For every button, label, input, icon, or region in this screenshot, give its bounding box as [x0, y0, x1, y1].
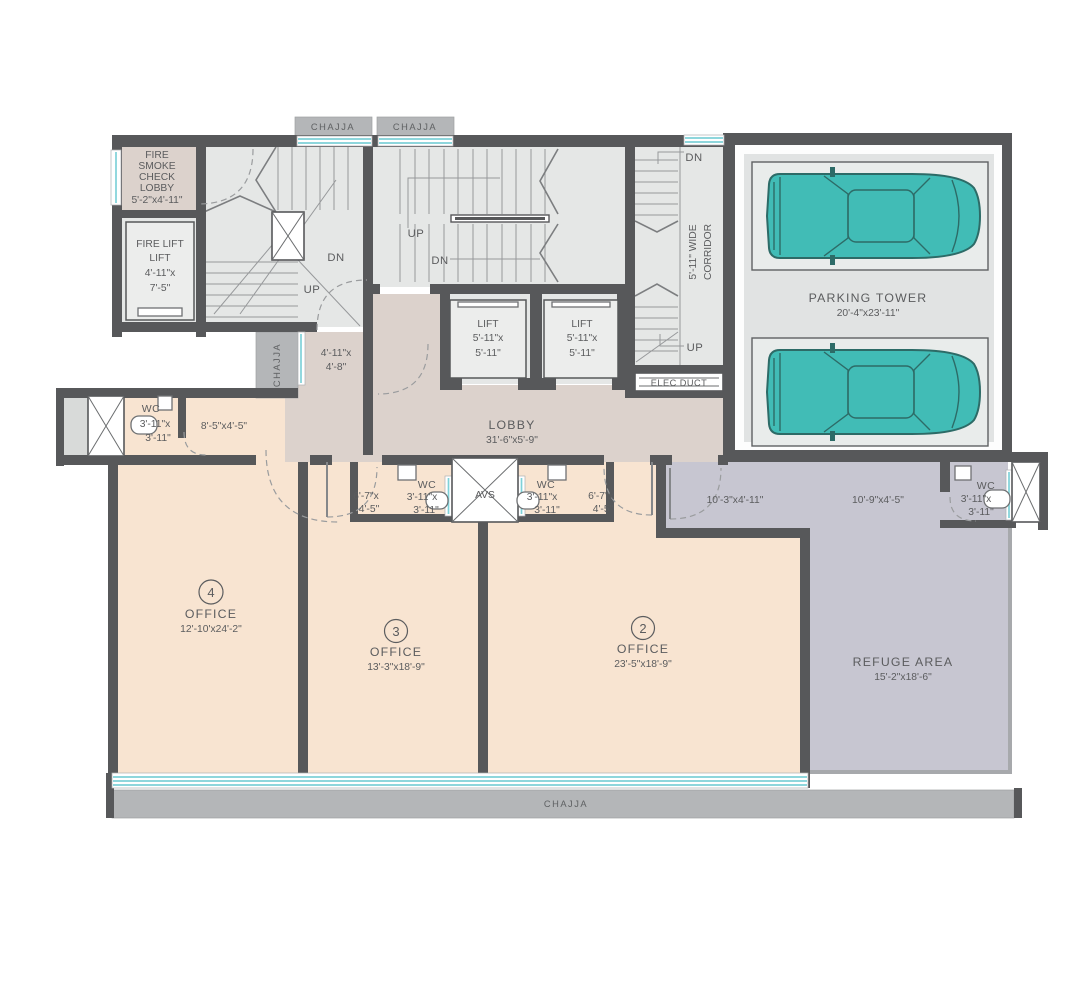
fire-lift-line1: FIRE LIFT — [136, 239, 184, 250]
stair-shaft-duct — [272, 212, 304, 260]
refuge-passage-b-label: 10'-9"x4'-5" — [852, 495, 904, 506]
lobby-arm-right — [373, 294, 440, 387]
corridor-dn-label: DN — [685, 152, 702, 164]
stair2-up-label: UP — [408, 228, 425, 240]
protrusion-gray — [64, 396, 88, 456]
corridor-line1: 5'-11" WIDE — [688, 224, 699, 279]
stair1-dn-label: DN — [327, 252, 344, 264]
lift2-dim2: 5'-11" — [569, 348, 595, 359]
passage-o3-dim2: 4'-5" — [359, 504, 380, 515]
parking-dim: 20'-4"x23'-11" — [837, 308, 900, 319]
fire-lobby-line1: FIRE — [145, 150, 169, 161]
office-2-number: 2 — [639, 621, 646, 636]
avs-label: AVS — [475, 490, 495, 501]
fire-lift-dim1: 4'-11"x — [145, 268, 176, 279]
refuge-right-border — [1008, 528, 1012, 772]
car-icon — [767, 167, 980, 265]
duct-right — [1012, 462, 1040, 522]
elec-duct-label: ELEC DUCT — [651, 378, 708, 388]
refuge-bottom-border — [804, 770, 1012, 774]
duct-left — [88, 396, 124, 456]
fire-lift-line2: LIFT — [149, 253, 171, 264]
corridor-up-label: UP — [687, 342, 704, 354]
lift2-name: LIFT — [571, 319, 593, 330]
passage-o2-dim1: 6'-7"x — [588, 491, 615, 502]
wc-mid-right-dim2: 3'-11" — [534, 505, 560, 516]
floor-plan-drawing: CHAJJA CHAJJA CHAJJA CHAJJA FIRE SMOKE C… — [0, 0, 1079, 983]
office-3-name: OFFICE — [370, 645, 422, 659]
fire-lift-dim2: 7'-5" — [150, 283, 171, 294]
office-2-dim: 23'-5"x18'-9" — [614, 659, 672, 670]
chajja-side-label: CHAJJA — [272, 343, 282, 387]
window-corridor-top — [684, 135, 724, 145]
car-icon — [767, 343, 980, 441]
corridor-line2: CORRIDOR — [703, 224, 714, 280]
chajja-top-2-label: CHAJJA — [393, 122, 437, 132]
lift1-dim2: 5'-11" — [475, 348, 501, 359]
lobby-passage-dim1: 4'-11"x — [321, 348, 352, 359]
lobby-dim: 31'-6"x5'-9" — [486, 435, 538, 446]
fire-lobby-line4: LOBBY — [140, 183, 174, 194]
wc-mid-left-name: WC — [418, 479, 437, 491]
wc-mid-right-name: WC — [537, 479, 556, 491]
wc-refuge-dim1: 3'-11"x — [961, 494, 992, 505]
fire-lobby-dim: 5'-2"x4'-11" — [131, 195, 182, 206]
office-3-dim: 13'-3"x18'-9" — [367, 662, 425, 673]
window-chajja-side — [298, 332, 305, 385]
wc-refuge-name: WC — [977, 480, 996, 492]
office-3-number: 3 — [392, 624, 399, 639]
office-2-name: OFFICE — [617, 642, 669, 656]
lobby-arm-left — [305, 332, 363, 387]
wc-left-name: WC — [142, 403, 161, 415]
passage-o2-dim2: 4'-5" — [593, 504, 614, 515]
passage-o3-dim1: 6'-7"x — [353, 491, 380, 502]
window-top-2 — [378, 136, 453, 146]
window-fire-lobby-left — [111, 150, 121, 205]
refuge-dim: 15'-2"x18'-6" — [874, 672, 932, 683]
wc-mid-right-dim1: 3'-11"x — [527, 492, 558, 503]
office-4-number: 4 — [207, 585, 214, 600]
refuge-passage-a-label: 10'-3"x4'-11" — [707, 495, 764, 506]
lift2-dim1: 5'-11"x — [567, 333, 598, 344]
window-band-offices — [112, 773, 808, 788]
wc-left-dim1: 3'-11"x — [140, 419, 171, 430]
stair1-up-label: UP — [304, 284, 321, 296]
window-top-1 — [297, 136, 372, 146]
wc-mid-left-dim2: 3'-11" — [413, 505, 439, 516]
refuge-name: REFUGE AREA — [853, 655, 954, 669]
wc-refuge-dim2: 3'-11" — [968, 507, 994, 518]
wc-left-dim2: 3'-11" — [145, 433, 171, 444]
fire-lobby-line3: CHECK — [139, 172, 175, 183]
lobby-passage-dim2: 4'-8" — [326, 362, 347, 373]
wc-mid-left-dim1: 3'-11"x — [407, 492, 438, 503]
parking-name: PARKING TOWER — [809, 291, 928, 305]
lift1-name: LIFT — [477, 319, 499, 330]
office-4-name: OFFICE — [185, 607, 237, 621]
lobby-name: LOBBY — [488, 418, 535, 432]
stair2-dn-label: DN — [431, 255, 448, 267]
passage-8-5-label: 8'-5"x4'-5" — [201, 421, 247, 432]
fire-lobby-line2: SMOKE — [138, 161, 175, 172]
chajja-bottom-label: CHAJJA — [544, 799, 588, 809]
chajja-top-1-label: CHAJJA — [311, 122, 355, 132]
office-4-dim: 12'-10'x24'-2" — [180, 624, 242, 635]
floor-plan-page: CHAJJA CHAJJA CHAJJA CHAJJA FIRE SMOKE C… — [0, 0, 1079, 983]
lift1-dim1: 5'-11"x — [473, 333, 504, 344]
